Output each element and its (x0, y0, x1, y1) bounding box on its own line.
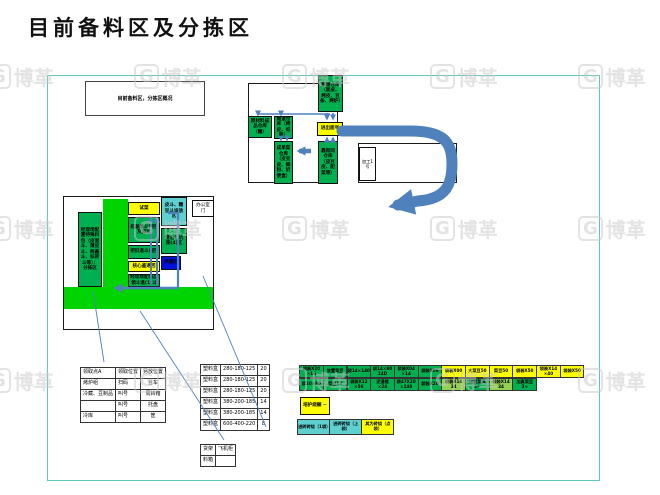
table-cell: 烤炉组 (81, 379, 116, 390)
right-box-pallet: 皮斗、糖豆斗垛放区 (161, 197, 187, 226)
strip-cell: 进砖砖绕（1袋） (297, 419, 330, 435)
strip-cell: 进砖砖绕（上袋） (329, 419, 362, 435)
table-cell (216, 456, 236, 467)
table-cell: 叫号 (116, 401, 141, 412)
office-door-label: 办公室门 (192, 200, 214, 217)
table-cell: 塑料盒 (201, 420, 221, 431)
table-cell: 货架 (201, 445, 216, 456)
zone-tunnel-store: 隧道仓库（烤皮、纸箱） (274, 116, 293, 139)
pick-table: 领取点A领取位置另放位置烤炉组扫码台车冷藏、豆制品叫号周转箱叫号托盘冷库叫号筐 (80, 367, 166, 423)
table-cell: 另放位置 (141, 368, 166, 379)
strip-cell: 袋装X14 34 (441, 378, 466, 391)
table-cell: 280-180-125 (221, 365, 258, 376)
table-cell: 冷库 (81, 412, 116, 423)
strip-cell: 袋47X20 ×140 (394, 378, 419, 391)
strip-cell: 加真菜豆 3+ (512, 378, 537, 391)
zone-street-store: 靠街间仓库（皮豆皮、配菜等） (318, 141, 338, 184)
brand-logo-icon: G (0, 368, 11, 393)
table-cell: 叫号 (116, 390, 141, 401)
strip-cell: 袋20×80 (299, 378, 324, 391)
page-title: 目前备料区及分拣区 (28, 12, 253, 42)
aisle-bar-green (103, 199, 128, 289)
table-cell: 600-400-220 (221, 420, 258, 431)
brand-name: 博革 (606, 214, 646, 243)
strip-cell: 放置菜豆 (323, 365, 348, 378)
mid-box-1: 试菜 (128, 202, 160, 215)
table-cell: 台车 (141, 379, 166, 390)
strip-cell: 袋装X00 (441, 365, 466, 378)
table-cell: 280-180-125 (221, 387, 258, 398)
strip-cell: 袋14×140 (347, 365, 372, 378)
strip-cell: 袋14×80 14D (370, 365, 395, 378)
overview-note-box: 目前备料区，分拣区概况 (85, 81, 205, 116)
table-cell: 280-180-125 (221, 376, 258, 387)
strip-cell: 大菜豆50 (465, 365, 490, 378)
brand-logo-icon: G (0, 216, 11, 241)
table-cell: 塑料盒 (201, 409, 221, 420)
table-cell: 20 (258, 376, 269, 387)
table-cell: 飞机柜 (216, 445, 236, 456)
strip-cell: 袋装X50 (512, 365, 537, 378)
extra-single-box: 培护绕橱 ~ (300, 397, 330, 415)
strip-cell: 菜豆50 (489, 365, 514, 378)
sorting-note-box: 经现场配置特殊料包（皮面斗、薄皮斗、两酱斗、标砖斗等）：分拣区 (78, 212, 102, 287)
table-cell: 领取位置 (116, 368, 141, 379)
table-cell: 380-200-185 (221, 409, 258, 420)
brand-watermark: G博革 (0, 62, 54, 91)
mid-box-4: 核心鉴退回 (128, 261, 160, 272)
strip-cell: 袋装X14 34 (489, 378, 514, 391)
table-cell: 20 (258, 387, 269, 398)
strip-cell: 放置菜具 3+ (465, 378, 490, 391)
table-cell: 周转箱 (141, 390, 166, 401)
brand-watermark: G博革 (0, 214, 54, 243)
strip-cell: 袋装X12 ×56 (347, 378, 372, 391)
brand-watermark: G博革 (0, 366, 54, 395)
strip-cell: 泥漫楼 ×24 (370, 378, 395, 391)
location-strip-row2: 袋20×80菜豆12袋装X12 ×56泥漫楼 ×24袋47X20 ×140袋装X… (300, 378, 537, 391)
location-strip-row1: 袋装X20 ×16放置菜豆袋14×140袋14×80 14D袋装X04 ×14袋… (300, 365, 584, 378)
table-cell: 380-200-185 (221, 398, 258, 409)
strip-cell: 其为砖绕（点袋） (361, 419, 394, 435)
mid-box-3: 把旧退斗退回 (128, 245, 160, 259)
table-cell: 塑料盒 (201, 387, 221, 398)
right-box-soak: 浸泡斗坑笼(4)区 (161, 228, 187, 254)
table-cell: 塑料盒 (201, 365, 221, 376)
table-cell: 筐 (141, 412, 166, 423)
right-box-heating: 供暖区 (161, 256, 181, 270)
zone-gate: 进出面号 (317, 122, 343, 136)
table-cell: 8 (258, 420, 269, 431)
strip-cell: 袋装X06 (418, 365, 443, 378)
mid-box-2: 机器退斗退回及异坑 (128, 217, 160, 243)
strip-cell: 袋装X14 ×40 (536, 365, 561, 378)
table-cell: 料箱 (201, 456, 216, 467)
zone-order-store: 成单菜仓库（皮豆皮、细粉、奶便盒） (274, 141, 293, 184)
rack-table: 货架飞机柜料箱 (200, 444, 236, 467)
strip-cell: 袋装X20 (418, 378, 443, 391)
table-cell: 冷藏、豆制品 (81, 390, 116, 401)
table-cell: 叫号 (116, 412, 141, 423)
strip-cell: 袋装X20 ×16 (299, 365, 324, 378)
zone-raw-store: 原材料成品仓库（糖） (248, 116, 272, 138)
processing-room-label: 加工1号 (359, 147, 376, 181)
table-cell: 14 (258, 409, 269, 420)
table-cell: 扫码 (116, 379, 141, 390)
brand-name: 博革 (606, 62, 646, 91)
table-cell: 14 (258, 398, 269, 409)
table-cell: 领取点A (81, 368, 116, 379)
extra-bottom-boxes: 进砖砖绕（1袋）进砖砖绕（上袋）其为砖绕（点袋） (298, 419, 394, 435)
brand-name: 博革 (606, 366, 646, 395)
brand-logo-icon: G (0, 64, 11, 89)
box-size-table: 塑料盒280-180-12520塑料盒280-180-12520塑料盒280-1… (200, 364, 270, 431)
table-cell: 塑料盒 (201, 398, 221, 409)
mid-box-5: 经现场配商品领斗退(1)斗 (128, 274, 160, 287)
strip-cell: 袋装X04 ×14 (394, 365, 419, 378)
strip-cell: 袋装X50 (560, 365, 585, 378)
table-cell: 20 (258, 365, 269, 376)
strip-cell: 菜豆12 (323, 378, 348, 391)
table-cell: 塑料盒 (201, 376, 221, 387)
zone-storage-main: 整理仓库（面皮、烤皮、豆条、烤炉） (318, 75, 343, 112)
table-cell (81, 401, 116, 412)
floor-band-green (64, 287, 213, 309)
table-cell: 托盘 (141, 401, 166, 412)
